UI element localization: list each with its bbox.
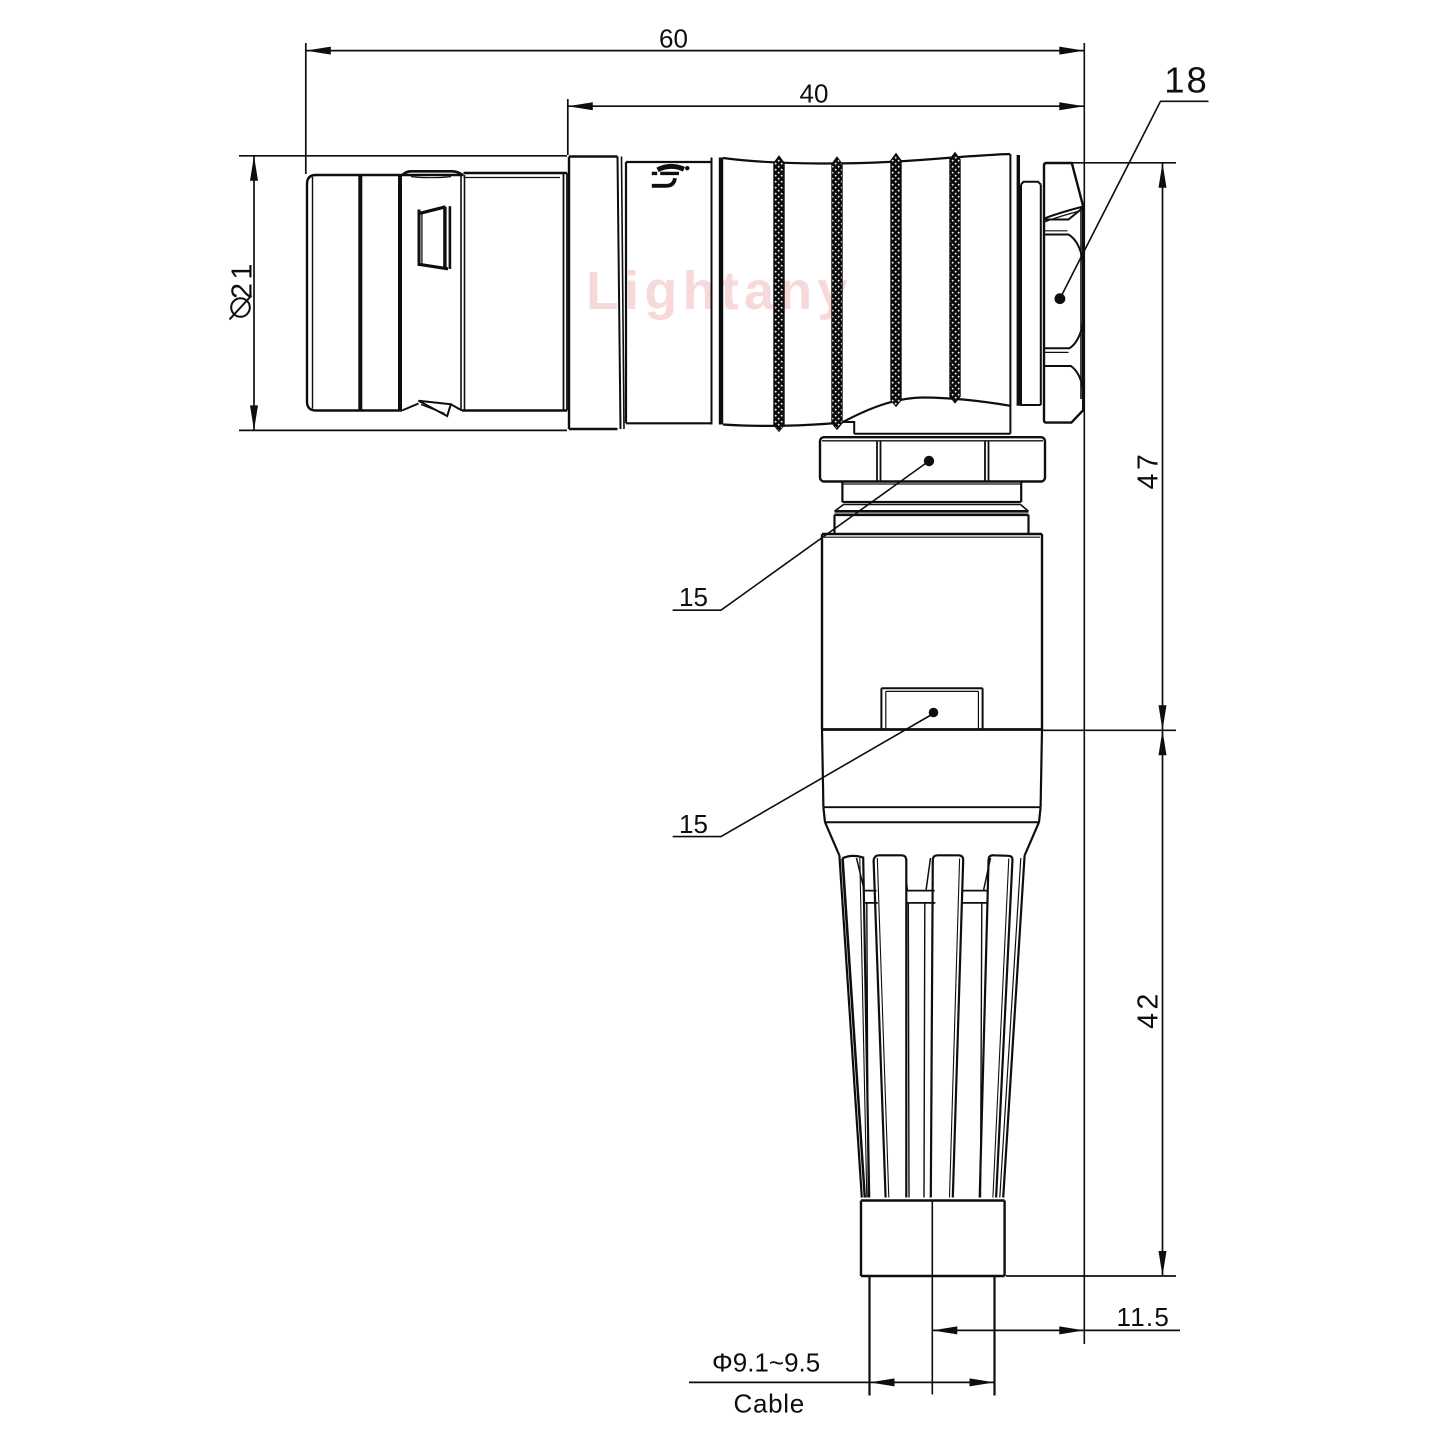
svg-text:15: 15 xyxy=(679,582,708,612)
svg-text:40: 40 xyxy=(800,79,829,109)
svg-text:15: 15 xyxy=(679,809,708,839)
svg-text:Cable: Cable xyxy=(734,1389,805,1419)
svg-text:Φ9.1~9.5: Φ9.1~9.5 xyxy=(712,1348,820,1378)
svg-text:11.5: 11.5 xyxy=(1117,1302,1170,1332)
svg-text:47: 47 xyxy=(1133,451,1165,490)
svg-text:18: 18 xyxy=(1164,60,1209,101)
svg-text:60: 60 xyxy=(659,24,688,54)
svg-text:21: 21 xyxy=(227,260,259,299)
svg-text:42: 42 xyxy=(1133,990,1165,1029)
